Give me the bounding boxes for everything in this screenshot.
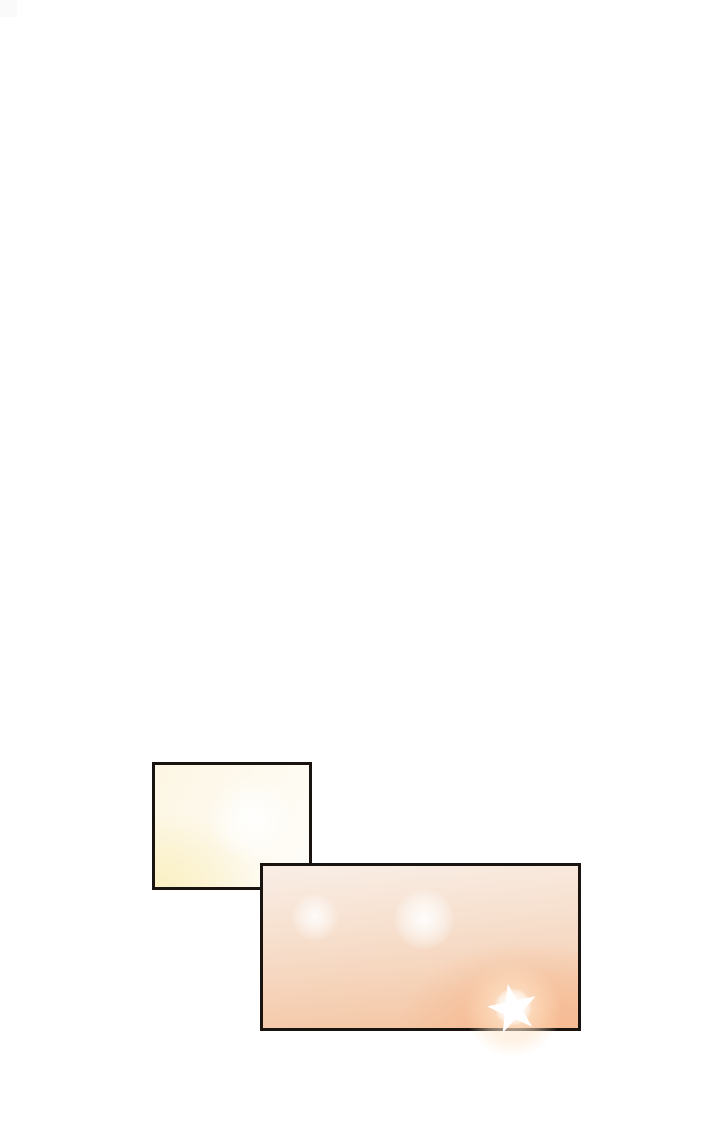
star-halo [465, 961, 561, 1057]
corner-artifact [0, 0, 17, 17]
star-bright-center [495, 989, 531, 1025]
comic-page [0, 0, 720, 1125]
light-glow-icon [394, 889, 454, 949]
comic-panel-wide [260, 863, 581, 1031]
star-glow-icon [473, 969, 553, 1049]
star-shape [482, 978, 544, 1040]
light-glow-icon [291, 893, 339, 941]
